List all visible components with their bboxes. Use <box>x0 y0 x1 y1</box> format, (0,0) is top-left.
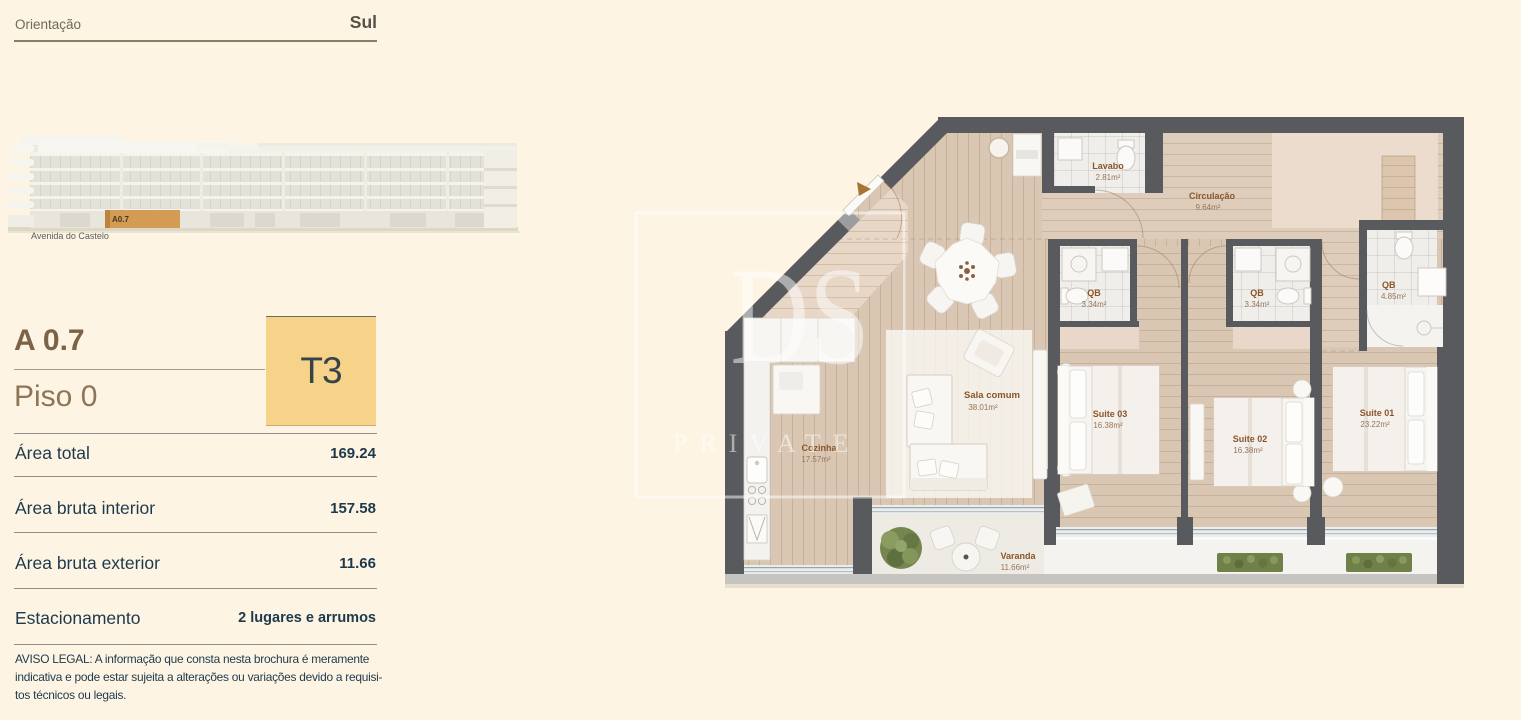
svg-text:38.01m²: 38.01m² <box>968 403 998 412</box>
svg-text:DS: DS <box>730 239 870 394</box>
svg-text:3.34m²: 3.34m² <box>1245 300 1270 309</box>
svg-text:Lavabo: Lavabo <box>1092 161 1124 171</box>
svg-text:2.81m²: 2.81m² <box>1096 173 1121 182</box>
svg-text:9.64m²: 9.64m² <box>1196 203 1221 212</box>
svg-text:23.22m²: 23.22m² <box>1360 420 1390 429</box>
svg-text:Circulação: Circulação <box>1189 191 1236 201</box>
svg-text:A0.7: A0.7 <box>112 215 129 224</box>
svg-text:3.34m²: 3.34m² <box>1082 300 1107 309</box>
svg-text:Suite 02: Suite 02 <box>1233 434 1268 444</box>
svg-text:16.38m²: 16.38m² <box>1233 446 1263 455</box>
svg-text:16.38m²: 16.38m² <box>1093 421 1123 430</box>
svg-text:Varanda: Varanda <box>1000 551 1036 561</box>
svg-text:4.85m²: 4.85m² <box>1381 292 1406 301</box>
svg-text:Sala comum: Sala comum <box>964 390 1020 401</box>
svg-text:QB: QB <box>1382 280 1396 290</box>
svg-text:11.66m²: 11.66m² <box>1001 563 1030 572</box>
svg-text:QB: QB <box>1250 288 1264 298</box>
svg-text:Avenida do Castelo: Avenida do Castelo <box>31 231 109 241</box>
svg-text:PRIVATE: PRIVATE <box>673 429 861 458</box>
svg-text:Suite 03: Suite 03 <box>1093 409 1128 419</box>
svg-text:QB: QB <box>1087 288 1101 298</box>
svg-text:Suite 01: Suite 01 <box>1360 408 1395 418</box>
